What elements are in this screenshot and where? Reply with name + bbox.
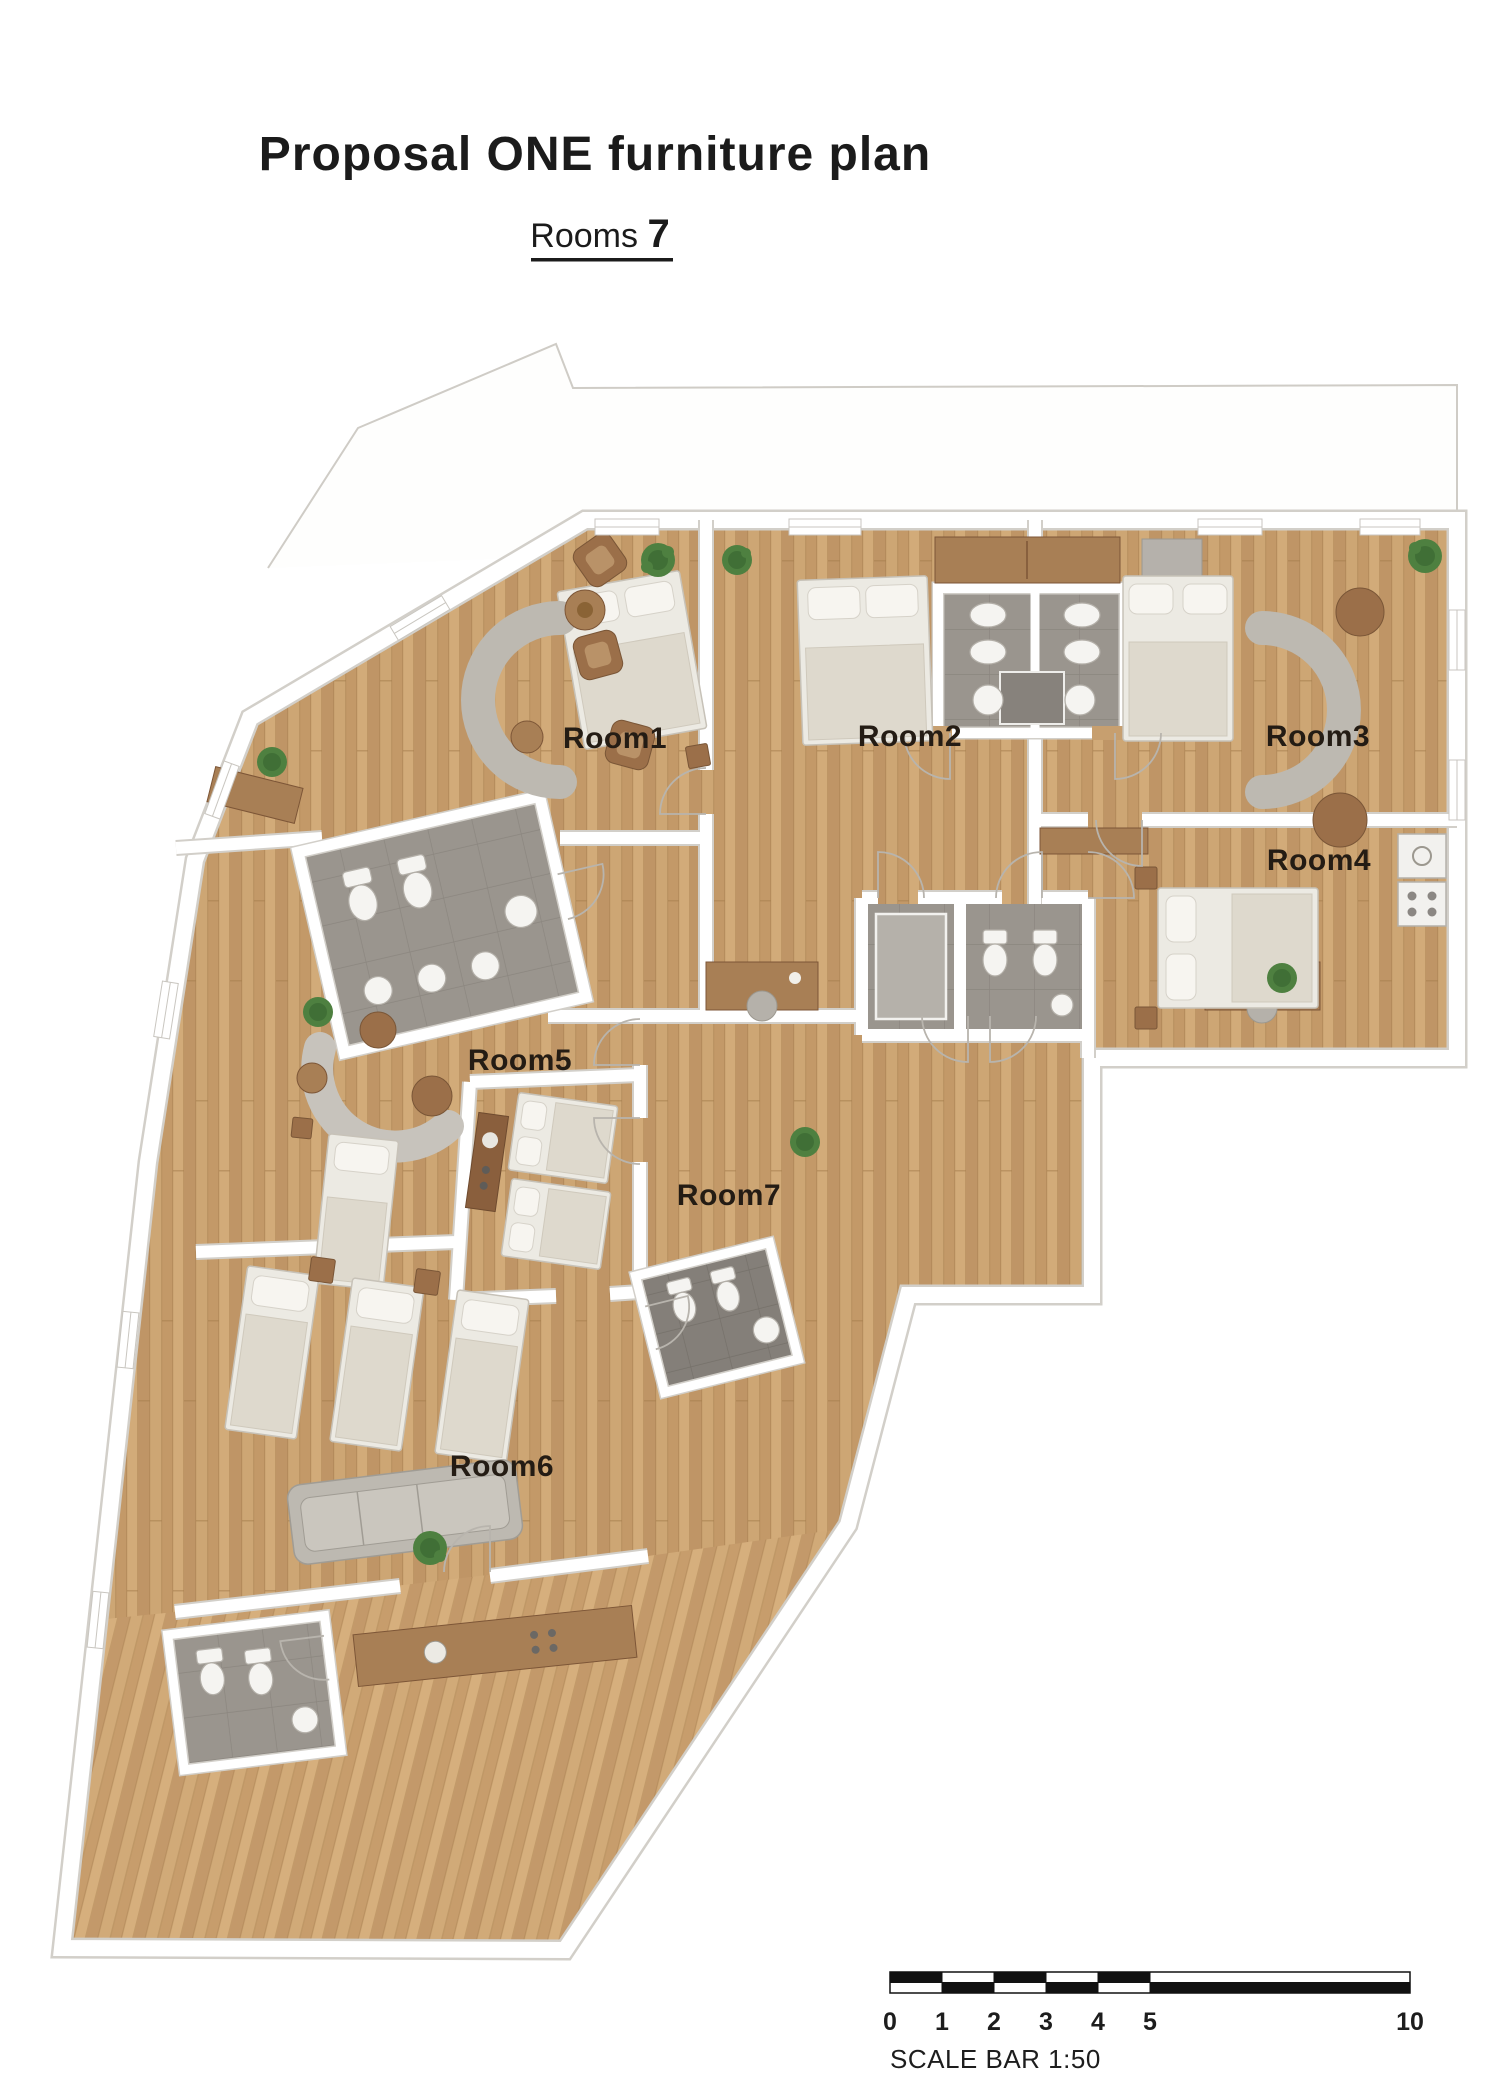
nightstand xyxy=(413,1268,440,1295)
table-center xyxy=(577,602,593,618)
plant xyxy=(1408,539,1442,573)
toilet xyxy=(983,930,1007,976)
bathroom-room7 xyxy=(635,1243,798,1393)
room-label-room5: Room5 xyxy=(468,1044,572,1077)
sink xyxy=(1064,640,1100,664)
sink xyxy=(1064,603,1100,627)
round-table-room1 xyxy=(511,721,543,753)
pouf xyxy=(412,1076,452,1116)
nightstand xyxy=(308,1256,335,1283)
pouf xyxy=(1313,793,1367,847)
bathroom-room2-room3 xyxy=(906,588,1138,740)
nightstand xyxy=(291,1117,313,1139)
plant xyxy=(722,545,752,575)
closet xyxy=(1142,539,1202,581)
bathroom-shower-room xyxy=(868,904,954,1029)
plant xyxy=(257,747,287,777)
sink xyxy=(970,603,1006,627)
nightstand xyxy=(1135,867,1157,889)
scale-tick-1: 1 xyxy=(935,2008,949,2036)
scale-bar-caption: SCALE BAR 1:50 xyxy=(890,2044,1101,2074)
bed-room4 xyxy=(1158,888,1318,1008)
scale-tick-0: 0 xyxy=(883,2008,897,2036)
nightstand xyxy=(1135,1007,1157,1029)
hall-wardrobe xyxy=(1040,828,1148,854)
scale-tick-4: 4 xyxy=(1091,2008,1105,2036)
page-title: Proposal ONE furniture plan xyxy=(259,128,931,181)
sink xyxy=(1051,994,1073,1016)
rooms-subtitle-label: Rooms xyxy=(530,217,638,255)
room-label-room2: Room2 xyxy=(858,720,962,753)
scale-tick-5: 5 xyxy=(1143,2008,1157,2036)
bed-room7 xyxy=(508,1092,618,1183)
room-label-room4: Room4 xyxy=(1267,844,1371,877)
plant xyxy=(1267,963,1297,993)
sink xyxy=(970,640,1006,664)
rooms-count: 7 xyxy=(647,212,669,256)
desk-chair xyxy=(747,991,777,1021)
bathroom-room6 xyxy=(168,1616,341,1770)
pouf xyxy=(360,1012,396,1048)
bed-room3 xyxy=(1123,576,1233,741)
toilet xyxy=(973,685,1003,715)
room-label-room1: Room1 xyxy=(563,722,667,755)
bed-room7 xyxy=(501,1178,611,1269)
plant xyxy=(790,1127,820,1157)
toilet xyxy=(1065,685,1095,715)
plant xyxy=(303,997,333,1027)
scale-tick-10: 10 xyxy=(1396,2008,1424,2036)
toilet xyxy=(1033,930,1057,976)
shower-tray xyxy=(876,914,946,1019)
shower-tray xyxy=(1000,672,1064,724)
round-table-room5 xyxy=(297,1063,327,1093)
pouf xyxy=(1336,588,1384,636)
nightstand xyxy=(685,743,710,768)
plant xyxy=(641,543,675,577)
scale-tick-3: 3 xyxy=(1039,2008,1053,2036)
floor-plan-canvas: Proposal ONE furniture plan Rooms 7 xyxy=(0,0,1500,2083)
desk-lamp xyxy=(789,972,801,984)
subtitle-underline xyxy=(531,258,673,262)
scale-tick-2: 2 xyxy=(987,2008,1001,2036)
room-label-room6: Room6 xyxy=(450,1450,554,1483)
scale-bar: 0 1 2 3 4 5 10 SCALE BAR 1:50 xyxy=(883,1972,1424,2074)
room-label-room7: Room7 xyxy=(677,1179,781,1212)
bathroom-wc xyxy=(966,904,1082,1029)
room-label-room3: Room3 xyxy=(1266,720,1370,753)
rooms-subtitle: Rooms 7 xyxy=(530,212,669,256)
plant xyxy=(413,1531,447,1565)
